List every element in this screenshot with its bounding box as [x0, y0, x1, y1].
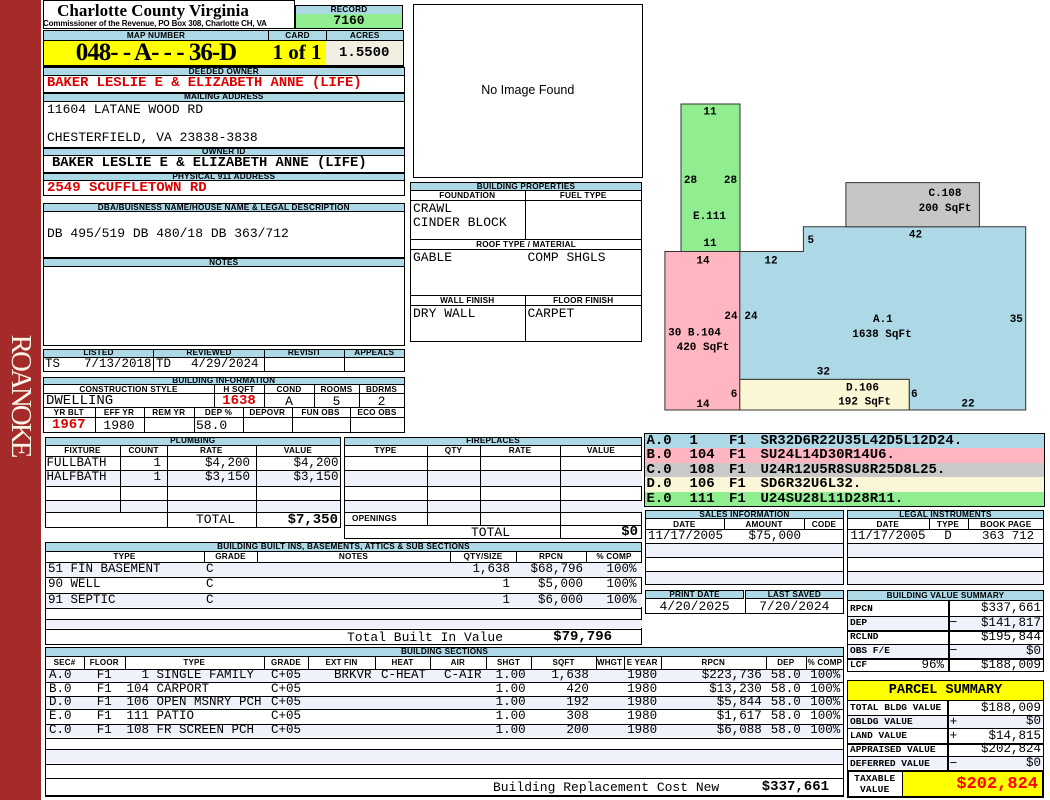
svg-text:1638 SqFt: 1638 SqFt — [852, 329, 911, 341]
svg-text:22: 22 — [961, 399, 974, 411]
svg-text:5: 5 — [808, 235, 815, 247]
svg-text:6: 6 — [731, 389, 738, 401]
svg-text:14: 14 — [696, 399, 710, 411]
svg-text:28: 28 — [724, 175, 738, 187]
svg-text:12: 12 — [764, 256, 777, 268]
svg-text:200 SqFt: 200 SqFt — [919, 203, 972, 215]
svg-text:D.106: D.106 — [846, 383, 879, 395]
svg-text:30 B.104: 30 B.104 — [668, 328, 721, 340]
svg-text:32: 32 — [817, 367, 830, 379]
svg-text:E.111: E.111 — [693, 211, 726, 223]
svg-text:24: 24 — [744, 311, 758, 323]
svg-text:28: 28 — [684, 175, 698, 187]
svg-text:A.1: A.1 — [873, 314, 893, 326]
svg-text:192 SqFt: 192 SqFt — [838, 397, 891, 409]
svg-text:11: 11 — [703, 238, 717, 250]
svg-text:42: 42 — [909, 230, 922, 242]
svg-text:6: 6 — [911, 389, 918, 401]
svg-text:C.108: C.108 — [928, 188, 961, 200]
svg-text:420 SqFt: 420 SqFt — [677, 342, 730, 354]
svg-text:24: 24 — [724, 311, 738, 323]
svg-text:11: 11 — [703, 107, 717, 119]
svg-text:14: 14 — [696, 256, 710, 268]
svg-text:35: 35 — [1010, 314, 1024, 326]
